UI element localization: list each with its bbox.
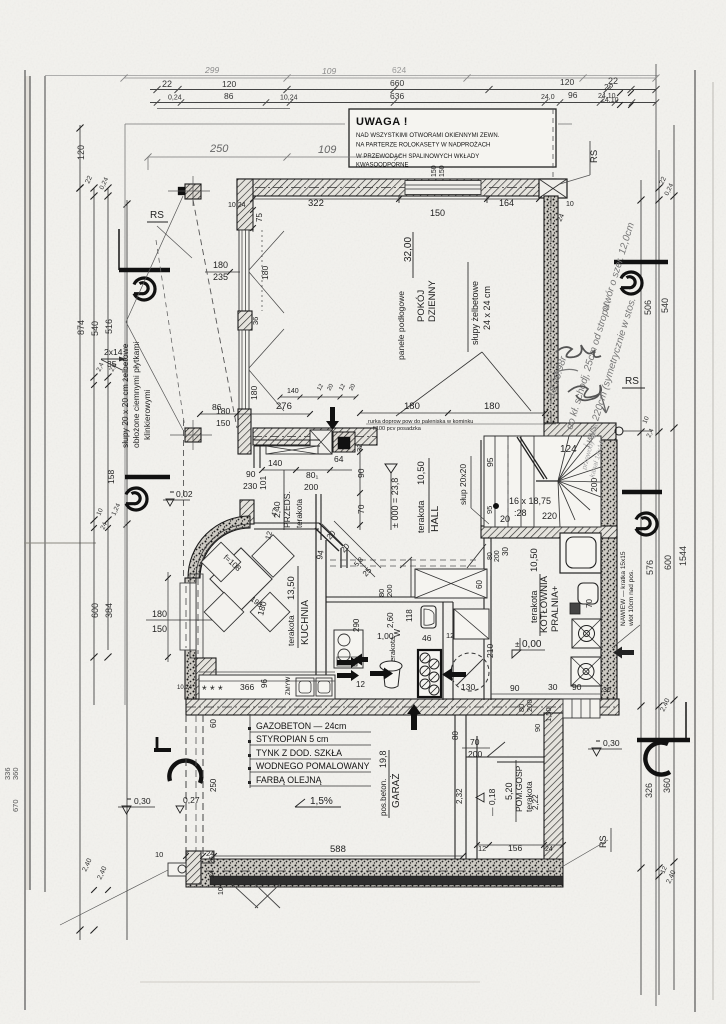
svg-text:PRZEDS.: PRZEDS. [282, 491, 292, 528]
svg-text:516: 516 [104, 319, 114, 334]
svg-text:DZIENNY: DZIENNY [427, 280, 438, 322]
svg-text:200: 200 [589, 478, 599, 492]
svg-text:130: 130 [461, 682, 475, 692]
svg-text:13,50: 13,50 [286, 576, 297, 600]
svg-text:540: 540 [660, 298, 670, 313]
svg-text:WODNEGO POMALOWANY: WODNEGO POMALOWANY [256, 761, 370, 771]
svg-text:0,24: 0,24 [168, 95, 182, 102]
svg-text:12: 12 [446, 631, 454, 640]
svg-text:±: ± [515, 640, 520, 649]
svg-text:109: 109 [318, 144, 336, 156]
svg-text:94: 94 [314, 549, 326, 560]
svg-text:210: 210 [485, 644, 495, 658]
svg-text:235: 235 [213, 272, 228, 282]
svg-text:90: 90 [572, 682, 582, 692]
svg-text:16 x 18,75: 16 x 18,75 [509, 496, 551, 506]
svg-text:180: 180 [249, 386, 259, 400]
svg-text:24,10: 24,10 [601, 97, 619, 104]
svg-text:5,20: 5,20 [504, 782, 514, 800]
svg-text:10: 10 [155, 850, 163, 859]
svg-text:874: 874 [76, 320, 86, 335]
svg-text:120: 120 [76, 145, 86, 160]
svg-text:RS: RS [625, 376, 639, 387]
svg-text:słup 20x20: słup 20x20 [458, 464, 468, 505]
svg-text:terakota: terakota [295, 499, 304, 528]
svg-text:230: 230 [243, 481, 257, 491]
svg-text:TYNK Z DOD. SZKŁA: TYNK Z DOD. SZKŁA [256, 748, 342, 758]
svg-text:PRALNIA+: PRALNIA+ [550, 585, 561, 632]
svg-text:36: 36 [251, 317, 260, 325]
svg-text:200: 200 [468, 749, 482, 759]
svg-text:384: 384 [104, 603, 114, 618]
svg-text:90: 90 [533, 724, 542, 732]
svg-text:250: 250 [209, 778, 218, 792]
svg-text:670: 670 [11, 799, 20, 812]
svg-text:80: 80 [451, 731, 460, 740]
svg-text:słupy żelbetowe: słupy żelbetowe [470, 281, 480, 345]
svg-text:180: 180 [484, 401, 500, 412]
svg-text:obłożone ciemnymi płytkami: obłożone ciemnymi płytkami [131, 342, 141, 448]
svg-text:366: 366 [240, 682, 254, 692]
svg-text:140: 140 [268, 458, 282, 468]
svg-text:636: 636 [390, 91, 404, 101]
svg-text:180: 180 [213, 260, 228, 270]
svg-text:10,50: 10,50 [529, 548, 540, 572]
svg-text:150: 150 [430, 208, 445, 218]
svg-text:10,24: 10,24 [280, 95, 298, 102]
svg-text:0,00: 0,00 [522, 639, 542, 650]
svg-text:200: 200 [304, 482, 318, 492]
svg-text:0,30: 0,30 [134, 796, 151, 806]
svg-text:200: 200 [525, 699, 534, 712]
svg-text:22: 22 [604, 82, 614, 92]
svg-text:200: 200 [494, 550, 501, 562]
svg-text:24,0: 24,0 [541, 94, 555, 101]
svg-text:NAWIEW — kratka 15x15: NAWIEW — kratka 15x15 [620, 551, 627, 626]
svg-text:10,24: 10,24 [228, 202, 246, 209]
svg-text:70: 70 [585, 599, 594, 608]
svg-text:30: 30 [548, 682, 558, 692]
svg-text:588: 588 [330, 844, 346, 855]
svg-text:fi100 pcv posadzka: fi100 pcv posadzka [373, 426, 422, 432]
svg-text:90: 90 [246, 469, 256, 479]
svg-text:terakota: terakota [416, 500, 426, 533]
svg-text:10,50: 10,50 [416, 461, 427, 485]
svg-text:95: 95 [485, 457, 495, 467]
svg-text:95: 95 [485, 506, 494, 514]
svg-text:120: 120 [560, 77, 574, 87]
svg-text:150: 150 [152, 624, 167, 634]
svg-text:20: 20 [500, 514, 510, 524]
svg-text:HALL: HALL [429, 506, 441, 532]
svg-text:80₁: 80₁ [306, 470, 318, 480]
svg-text:180: 180 [404, 401, 420, 412]
svg-text:140: 140 [287, 388, 299, 395]
svg-text:ZMYW: ZMYW [286, 676, 292, 695]
svg-text:90: 90 [510, 683, 520, 693]
svg-text:panele podłogowe: panele podłogowe [396, 291, 406, 360]
svg-text:± 000 = 23,8: ± 000 = 23,8 [390, 478, 400, 528]
svg-text:124: 124 [560, 444, 577, 455]
svg-text:322: 322 [308, 198, 324, 209]
svg-text::28: :28 [514, 508, 527, 518]
svg-text:NAD WSZYSTKIMI OTWORAMI OKI: NAD WSZYSTKIMI OTWORAMI OKIENNYMI ZEWN. [356, 133, 500, 139]
svg-text:0,02: 0,02 [176, 489, 193, 499]
svg-text:10: 10 [218, 887, 225, 895]
svg-text:624: 624 [392, 65, 406, 75]
svg-text:pos.beton.: pos.beton. [379, 779, 388, 816]
svg-text:24: 24 [545, 846, 553, 853]
svg-text:35: 35 [107, 359, 117, 369]
svg-text:— 0,18: — 0,18 [487, 788, 497, 816]
svg-text:158: 158 [106, 470, 116, 484]
svg-text:96: 96 [568, 90, 578, 100]
svg-text:75: 75 [255, 213, 264, 222]
svg-text:506: 506 [643, 300, 653, 315]
svg-text:klinkierowymi: klinkierowymi [142, 389, 152, 440]
svg-text:10,24: 10,24 [177, 685, 193, 691]
svg-text:250: 250 [209, 143, 229, 155]
svg-text:80: 80 [487, 552, 494, 560]
svg-text:POKÓJ: POKÓJ [416, 290, 427, 322]
svg-text:terakota: terakota [529, 590, 539, 623]
svg-text:30: 30 [501, 547, 510, 556]
svg-text:70: 70 [470, 737, 480, 747]
svg-text:200: 200 [385, 584, 394, 597]
svg-text:STYROPIAN 5 cm: STYROPIAN 5 cm [256, 734, 328, 744]
svg-text:290: 290 [352, 618, 361, 632]
svg-text:164: 164 [499, 198, 514, 208]
svg-text:RS: RS [598, 835, 608, 848]
svg-text:12: 12 [356, 680, 365, 689]
svg-text:RS: RS [589, 150, 600, 163]
svg-text:540: 540 [90, 321, 100, 336]
svg-text:26: 26 [209, 856, 216, 864]
svg-text:118: 118 [405, 609, 414, 622]
svg-text:120: 120 [222, 79, 236, 89]
svg-text:2,32: 2,32 [455, 788, 464, 804]
svg-text:GAZOBETON — 24cm: GAZOBETON — 24cm [256, 721, 346, 731]
svg-text:1,50: 1,50 [544, 707, 553, 722]
svg-text:360: 360 [11, 767, 20, 780]
svg-text:70: 70 [356, 504, 366, 514]
svg-text:2,22: 2,22 [531, 794, 540, 810]
svg-text:0,30: 0,30 [603, 738, 620, 748]
svg-text:NA PARTERZE ROLOKASETY W N: NA PARTERZE ROLOKASETY W NADPROŻACH [356, 142, 490, 149]
svg-text:24: 24 [209, 870, 216, 878]
svg-text:101: 101 [258, 476, 268, 490]
svg-text:0,27: 0,27 [183, 795, 200, 805]
svg-text:RS: RS [150, 210, 164, 221]
svg-text:terakota: terakota [286, 615, 296, 646]
svg-text:32,00: 32,00 [403, 237, 414, 262]
svg-text:10: 10 [566, 201, 574, 208]
svg-text:30: 30 [603, 687, 611, 694]
svg-text:24 x 24 cm: 24 x 24 cm [482, 286, 492, 330]
svg-text:180: 180 [260, 266, 270, 280]
svg-text:terakota: terakota [388, 636, 397, 664]
svg-text:KOTŁOWNIA: KOTŁOWNIA [539, 575, 550, 633]
svg-text:22: 22 [162, 79, 172, 89]
svg-text:UWAGA !: UWAGA ! [356, 116, 408, 128]
svg-text:W: W [392, 629, 402, 637]
svg-text:2,60: 2,60 [386, 612, 395, 628]
svg-text:FARBĄ OLEJNĄ: FARBĄ OLEJNĄ [256, 775, 322, 785]
svg-text:86: 86 [224, 91, 234, 101]
svg-text:GARAŻ: GARAŻ [389, 774, 402, 808]
svg-text:* * *: * * * [202, 683, 223, 697]
svg-text:326: 326 [644, 783, 654, 798]
svg-text:276: 276 [276, 401, 292, 412]
svg-text:60: 60 [209, 719, 218, 728]
svg-text:150: 150 [431, 165, 438, 177]
svg-text:299: 299 [204, 65, 219, 75]
svg-text:96: 96 [260, 679, 269, 688]
svg-text:220: 220 [542, 511, 557, 521]
svg-text:46: 46 [422, 633, 432, 643]
svg-text:60: 60 [475, 580, 484, 589]
svg-text:64: 64 [334, 454, 344, 464]
svg-text:150: 150 [439, 165, 446, 177]
svg-text:1544: 1544 [678, 546, 688, 566]
svg-text:19,8: 19,8 [378, 750, 388, 768]
svg-text:660: 660 [390, 78, 404, 88]
svg-text:wlot 10cm nad pos.: wlot 10cm nad pos. [628, 570, 635, 627]
svg-text:POM.GOSP: POM.GOSP [514, 765, 524, 812]
svg-text:słupy 20 x 20 cm żelbetowe: słupy 20 x 20 cm żelbetowe [120, 343, 130, 448]
svg-text:576: 576 [645, 560, 655, 575]
svg-text:109: 109 [322, 66, 336, 76]
svg-text:600: 600 [90, 603, 100, 618]
svg-text:32: 32 [355, 444, 364, 452]
svg-text:180: 180 [216, 406, 230, 416]
svg-text:1,5%: 1,5% [310, 796, 333, 807]
svg-text:KWASOODPORNE: KWASOODPORNE [356, 163, 408, 169]
svg-text:600: 600 [663, 555, 673, 570]
svg-text:360: 360 [662, 778, 672, 793]
svg-text:180: 180 [152, 609, 167, 619]
svg-text:150: 150 [216, 418, 230, 428]
svg-text:KUCHNIA: KUCHNIA [300, 600, 311, 645]
svg-text:156: 156 [508, 843, 522, 853]
svg-text:90: 90 [356, 468, 366, 478]
